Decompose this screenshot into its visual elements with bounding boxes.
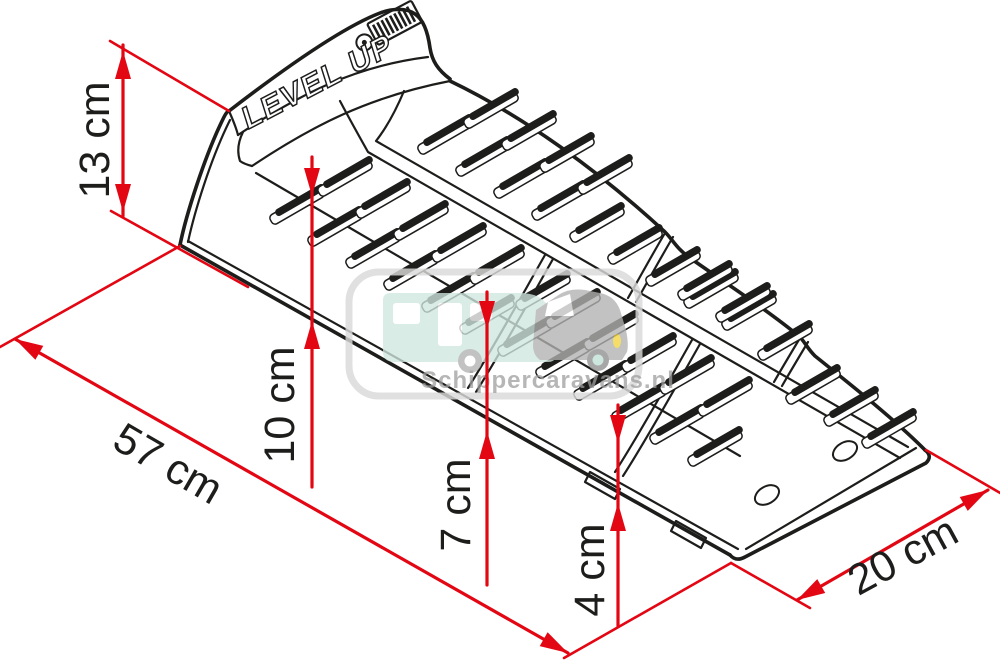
dimension-label-20cm: 20 cm xyxy=(840,507,966,605)
dimension-20cm: 20 cm xyxy=(731,450,1000,608)
ramp-drawing: LEVEL UP xyxy=(180,1,929,560)
watermark-caravan-icon xyxy=(383,293,557,373)
ramp-left-face-edge xyxy=(180,111,229,245)
dimension-57cm: 57 cm xyxy=(0,246,731,658)
dimension-arrowhead xyxy=(960,490,988,511)
dimension-extension-line xyxy=(0,246,180,347)
dimension-arrowhead xyxy=(115,51,131,79)
levelling-ramp-diagram: LEVEL UP xyxy=(0,0,1000,669)
dimension-4cm: 4 cm xyxy=(566,405,626,626)
ramp-toe-front-inner xyxy=(746,448,916,549)
dimension-13cm: 13 cm xyxy=(71,41,248,287)
dimension-arrowhead xyxy=(479,431,495,459)
dimension-extension-line xyxy=(926,450,1000,494)
dimension-label-4cm: 4 cm xyxy=(566,523,614,616)
dimension-label-7cm: 7 cm xyxy=(432,458,480,551)
watermark-car-icon xyxy=(533,290,628,372)
watermark-text: Schippercaravans.nl xyxy=(421,367,675,394)
dimension-arrowhead xyxy=(15,339,43,360)
dimension-label-57cm: 57 cm xyxy=(105,414,230,514)
dimension-label-10cm: 10 cm xyxy=(256,346,304,463)
product-name-label: LEVEL UP xyxy=(239,26,398,137)
dimension-arrowhead xyxy=(540,632,568,653)
ramp-left-face-inner xyxy=(188,120,230,242)
dimension-extension-line xyxy=(111,211,248,287)
diagram-page: LEVEL UP xyxy=(0,0,1000,669)
dimension-arrowhead xyxy=(610,415,626,443)
drain-hole xyxy=(829,437,860,465)
dimension-extension-line xyxy=(731,563,810,608)
watermark: Schippercaravans.nl xyxy=(349,272,675,396)
dimension-arrowhead xyxy=(797,579,825,600)
watermark-car-headlight xyxy=(613,334,621,348)
dimension-label-13cm: 13 cm xyxy=(71,81,119,198)
dimension-arrowhead xyxy=(304,321,320,349)
drain-hole xyxy=(751,481,782,509)
